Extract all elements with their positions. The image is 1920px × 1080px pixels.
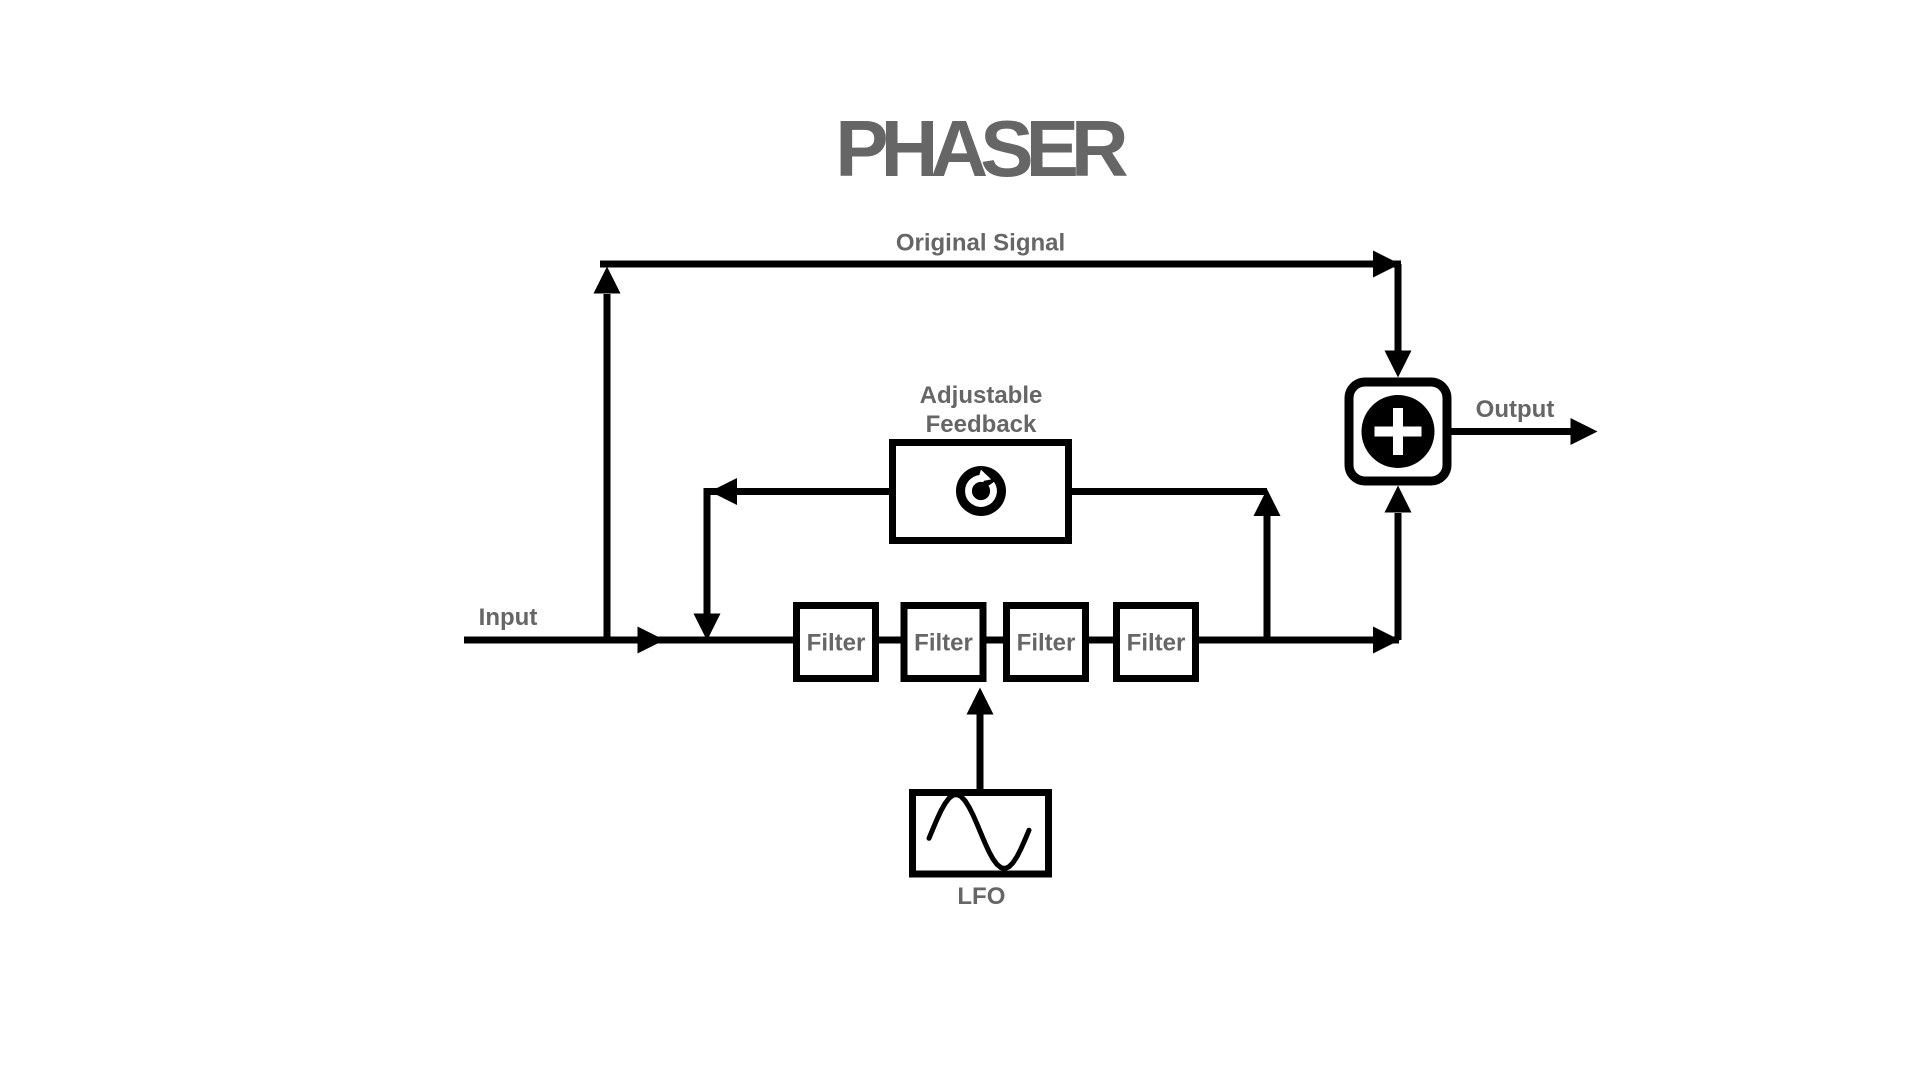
svg-text:Filter: Filter	[1127, 630, 1186, 657]
svg-text:Filter: Filter	[1017, 630, 1076, 657]
svg-text:Filter: Filter	[807, 630, 866, 657]
svg-text:Filter: Filter	[914, 630, 973, 657]
svg-text:Adjustable: Adjustable	[920, 382, 1043, 409]
svg-text:Input: Input	[479, 604, 538, 631]
svg-text:LFO: LFO	[957, 883, 1005, 910]
svg-text:Output: Output	[1476, 396, 1555, 423]
svg-text:PHASER: PHASER	[835, 104, 1128, 193]
svg-text:Feedback: Feedback	[926, 411, 1037, 438]
svg-text:Original Signal: Original Signal	[896, 230, 1065, 257]
